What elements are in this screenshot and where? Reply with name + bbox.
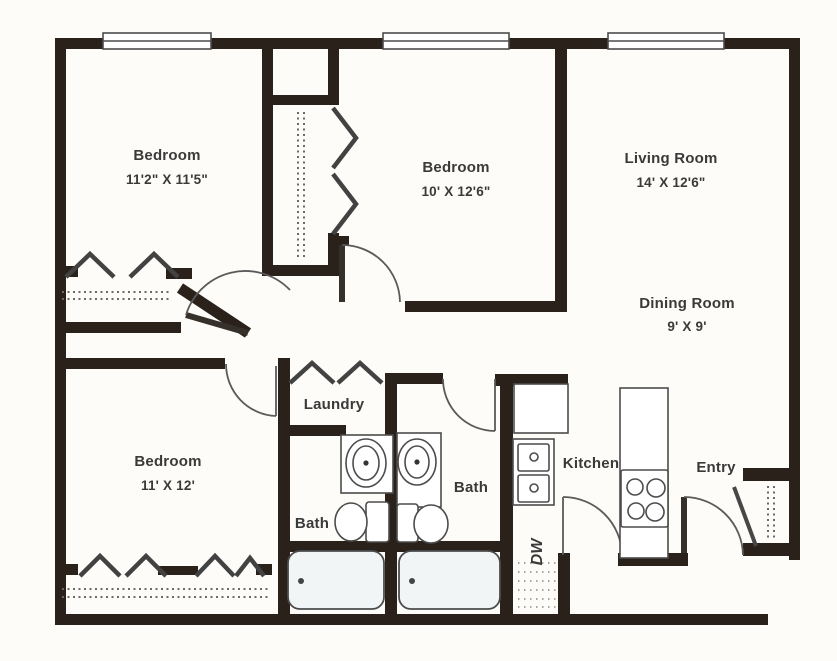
window-bedroom-middle [383, 33, 509, 49]
bathtub-bath-right [399, 551, 500, 609]
post-closet3-left [62, 564, 78, 575]
outer-wall-bottom [55, 614, 768, 625]
dims-dining-room: 9' X 9' [667, 319, 706, 334]
label-bath-right: Bath [454, 479, 488, 496]
wall-entry-closet-bottom [743, 543, 800, 556]
label-bath-center: Bath [295, 515, 329, 532]
window-bedroom-top-left [103, 33, 211, 49]
toilet-bath-right [397, 504, 448, 543]
doors [186, 245, 756, 555]
label-bedroom-bottom-left: Bedroom [134, 453, 201, 470]
wall-bedroom1-closet [262, 38, 273, 276]
dims-bedroom-top-left: 11'2" X 11'5" [126, 172, 208, 187]
label-laundry: Laundry [304, 396, 365, 413]
label-dishwasher: DW [529, 537, 546, 566]
bifold-doors [66, 108, 382, 576]
label-bedroom-top-left: Bedroom [133, 147, 200, 164]
label-entry: Entry [696, 459, 736, 476]
bifold-closet-bedroom2 [333, 108, 356, 234]
kitchen-sink-fixture [513, 439, 554, 505]
wall-bedroom2-living [555, 38, 567, 312]
outer-wall-right [789, 38, 800, 560]
door-entry-closet [734, 487, 756, 546]
wall-bedroom1-bottom [55, 322, 181, 333]
door-bath-right [443, 379, 495, 431]
stove-fixture [621, 470, 668, 527]
wall-bath-divider [385, 375, 397, 614]
kitchen-fixtures [513, 384, 668, 607]
wall-closet-bottom [262, 265, 339, 276]
dims-bedroom-middle: 10' X 12'6" [421, 184, 490, 199]
door-kitchen [563, 497, 622, 555]
vanity-sink-bath-right [397, 433, 441, 507]
wall-kitchen-bottom-vert [558, 553, 570, 614]
bathtub-bath-center [288, 551, 384, 609]
kitchen-floor-tile [518, 563, 556, 607]
bifold-laundry [290, 363, 382, 383]
wall-bath2-kitchen [500, 375, 513, 614]
toilet-bath-center [335, 502, 389, 542]
label-dining-room: Dining Room [639, 295, 735, 312]
label-living-room: Living Room [624, 150, 717, 167]
bifold-closet-bedroom1 [66, 254, 178, 277]
door-bedroom2 [342, 245, 400, 302]
floor-plan-drawing: Bedroom 11'2" X 11'5" Bedroom 10' X 12'6… [0, 0, 837, 661]
wall-bedroom3-top [55, 358, 225, 369]
window-living-room [608, 33, 724, 49]
wall-closet-divider [262, 95, 339, 105]
label-kitchen: Kitchen [563, 455, 619, 472]
dims-living-room: 14' X 12'6" [636, 175, 705, 190]
vanity-sink-bath-center [341, 435, 393, 493]
wall-laundry-bottom [278, 425, 346, 436]
windows [103, 33, 724, 49]
wall-entry-closet-top [743, 468, 800, 481]
dims-bedroom-bottom-left: 11' X 12' [141, 478, 195, 493]
door-front-entry [684, 497, 743, 555]
wall-closet-right-upper [328, 38, 339, 102]
wall-bedroom2-bottom [405, 301, 567, 312]
refrigerator-fixture [514, 384, 568, 433]
floor-plan-page: Bedroom 11'2" X 11'5" Bedroom 10' X 12'6… [0, 0, 837, 661]
wall-front-door-stub [670, 553, 688, 566]
label-bedroom-middle: Bedroom [422, 159, 489, 176]
door-bedroom3-hall [226, 364, 276, 416]
